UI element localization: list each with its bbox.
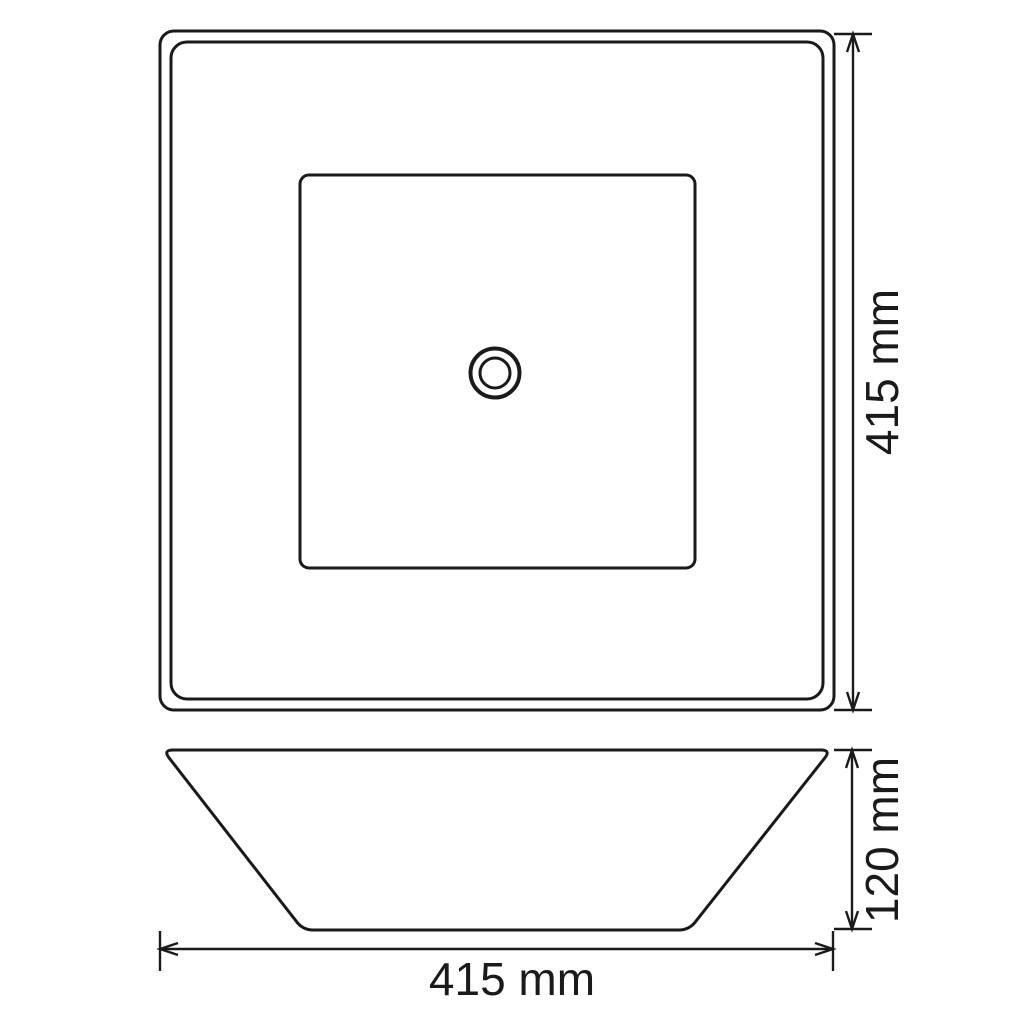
top-view-height-label: 415 mm xyxy=(856,289,908,455)
side-view xyxy=(167,750,827,930)
drain-outer-ring xyxy=(471,349,520,398)
top-view-rim xyxy=(171,42,823,699)
top-view-height-dimension: 415 mm xyxy=(834,34,908,710)
side-view-width-dimension: 415 mm xyxy=(160,931,833,1005)
top-view xyxy=(160,31,834,710)
top-view-outer-edge xyxy=(160,31,834,710)
drain-hole xyxy=(480,358,510,388)
side-view-height-label: 120 mm xyxy=(856,757,908,923)
side-view-width-label: 415 mm xyxy=(429,953,595,1005)
product-dimension-diagram: 415 mm 120 mm 415 mm xyxy=(0,0,1024,1024)
side-view-profile xyxy=(167,750,827,930)
sink-technical-drawing: 415 mm 120 mm 415 mm xyxy=(0,0,1024,1024)
side-view-height-dimension: 120 mm xyxy=(834,750,908,929)
top-view-basin-floor xyxy=(300,175,695,568)
